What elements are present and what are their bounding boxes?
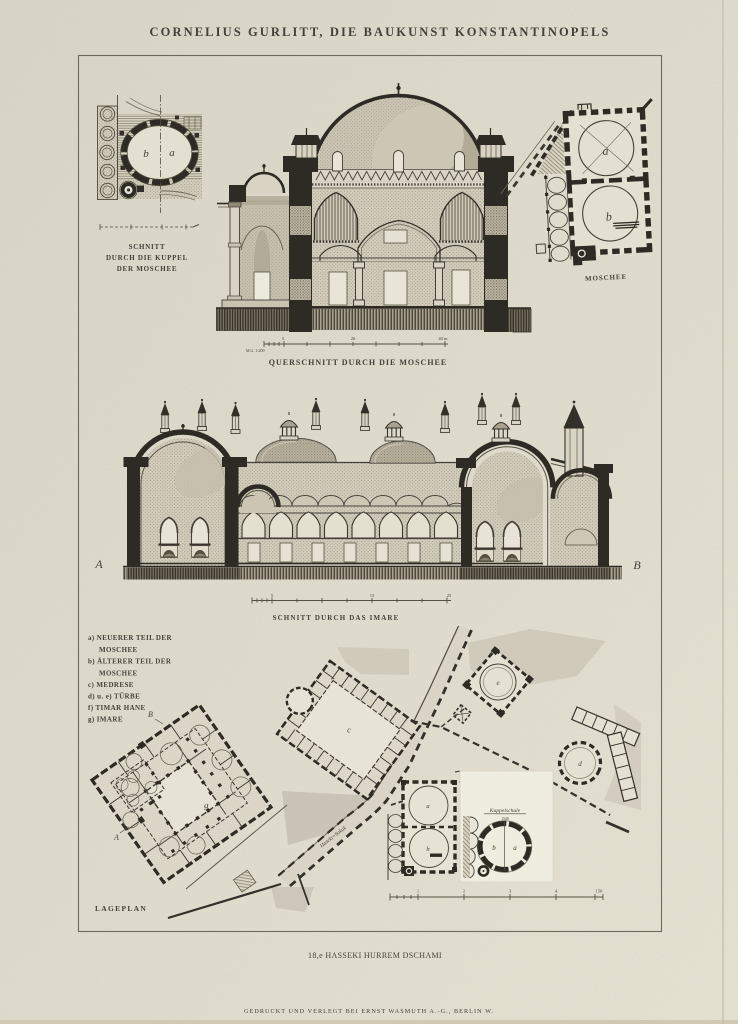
svg-text:b: b [143, 148, 149, 160]
svg-text:b: b [605, 209, 612, 223]
svg-text:CORNELIUS GURLITT, DIE BAUKUNS: CORNELIUS GURLITT, DIE BAUKUNST KONSTANT… [150, 25, 611, 39]
svg-text:d: d [578, 760, 582, 768]
svg-text:150: 150 [596, 889, 604, 894]
svg-text:1: 1 [417, 889, 419, 894]
svg-text:15: 15 [370, 593, 375, 598]
svg-text:DER MOSCHEE: DER MOSCHEE [117, 265, 178, 273]
svg-text:40 m: 40 m [438, 336, 448, 341]
svg-text:c: c [347, 726, 351, 735]
svg-text:a) NEUERER TEIL DER: a) NEUERER TEIL DER [88, 634, 172, 642]
svg-text:25: 25 [447, 593, 452, 598]
svg-text:e: e [496, 679, 499, 687]
svg-text:a: a [169, 147, 175, 159]
svg-text:SCHNITT: SCHNITT [129, 243, 166, 251]
svg-text:B: B [148, 710, 153, 719]
svg-text:g: g [204, 800, 209, 810]
svg-text:QUERSCHNITT DURCH DIE MOSCHEE: QUERSCHNITT DURCH DIE MOSCHEE [269, 358, 447, 367]
svg-text:a: a [426, 803, 429, 810]
svg-text:MOSCHEE: MOSCHEE [99, 670, 138, 678]
svg-text:A: A [113, 833, 119, 842]
svg-text:20: 20 [351, 336, 356, 341]
svg-text:Kuppelschule: Kuppelschule [489, 808, 521, 814]
svg-text:A: A [94, 557, 103, 571]
svg-text:M.G. 1:200: M.G. 1:200 [246, 348, 265, 353]
svg-text:a: a [513, 844, 517, 852]
svg-text:2: 2 [463, 889, 465, 894]
svg-text:f) TIMAR HANE: f) TIMAR HANE [88, 704, 146, 712]
svg-text:GEDRUCKT UND VERLEGT BEI ERNST: GEDRUCKT UND VERLEGT BEI ERNST WASMUTH A… [244, 1008, 494, 1015]
svg-text:a: a [602, 144, 609, 158]
svg-text:b) ÄLTERER TEIL DER: b) ÄLTERER TEIL DER [88, 658, 172, 666]
svg-text:DURCH DIE KUPPEL: DURCH DIE KUPPEL [106, 254, 188, 262]
svg-text:LAGEPLAN: LAGEPLAN [95, 904, 147, 913]
svg-text:b: b [492, 844, 496, 852]
svg-text:c) MEDRESE: c) MEDRESE [88, 681, 134, 689]
svg-text:MOSCHEE: MOSCHEE [99, 646, 138, 654]
svg-text:SCHNITT DURCH DAS IMARE: SCHNITT DURCH DAS IMARE [273, 614, 400, 622]
svg-text:d) u. e) TÜRBE: d) u. e) TÜRBE [88, 693, 140, 701]
svg-text:B: B [633, 558, 641, 572]
svg-text:18,e HASSEKI HURREM DSCHAMI: 18,e HASSEKI HURREM DSCHAMI [308, 951, 442, 960]
svg-text:g) IMARE: g) IMARE [88, 716, 123, 724]
